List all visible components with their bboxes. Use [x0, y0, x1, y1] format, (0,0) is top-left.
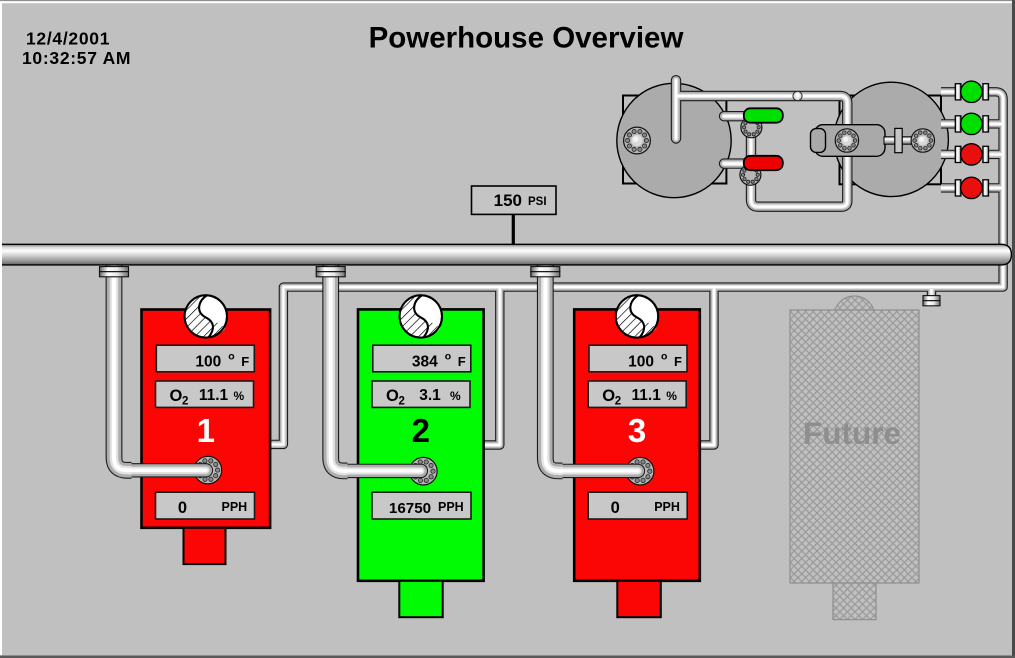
svg-text:2: 2: [412, 412, 430, 449]
svg-text:10:32:57 AM: 10:32:57 AM: [22, 48, 131, 68]
svg-text:PSI: PSI: [528, 196, 547, 208]
svg-text:0: 0: [178, 499, 187, 517]
svg-text:384: 384: [412, 354, 438, 371]
svg-text:Future: Future: [803, 415, 901, 451]
svg-text:2: 2: [615, 396, 621, 408]
svg-text:1: 1: [197, 412, 215, 449]
svg-text:o: o: [661, 351, 667, 363]
svg-text:O: O: [386, 387, 399, 405]
svg-text:11.1: 11.1: [632, 387, 662, 404]
svg-text:F: F: [674, 354, 682, 369]
svg-text:o: o: [445, 351, 451, 363]
svg-text:3: 3: [628, 412, 646, 449]
svg-text:%: %: [666, 389, 677, 403]
svg-text:16750: 16750: [389, 500, 431, 517]
svg-text:F: F: [458, 354, 466, 369]
svg-text:2: 2: [182, 396, 188, 408]
svg-text:100: 100: [628, 354, 654, 371]
svg-text:Powerhouse Overview: Powerhouse Overview: [369, 22, 684, 55]
svg-text:F: F: [241, 354, 249, 369]
svg-text:O: O: [170, 387, 183, 405]
svg-text:2: 2: [399, 396, 405, 408]
svg-text:%: %: [234, 389, 245, 403]
svg-text:O: O: [602, 387, 615, 405]
svg-text:150: 150: [494, 191, 522, 210]
svg-text:3.1: 3.1: [419, 387, 441, 404]
svg-text:PPH: PPH: [438, 500, 464, 514]
svg-text:0: 0: [611, 499, 620, 517]
svg-text:%: %: [450, 389, 461, 403]
svg-text:PPH: PPH: [654, 500, 680, 514]
svg-text:11.1: 11.1: [199, 387, 229, 404]
svg-text:o: o: [228, 351, 234, 363]
svg-text:100: 100: [195, 354, 221, 371]
svg-text:12/4/2001: 12/4/2001: [26, 29, 110, 49]
svg-text:PPH: PPH: [222, 500, 248, 514]
